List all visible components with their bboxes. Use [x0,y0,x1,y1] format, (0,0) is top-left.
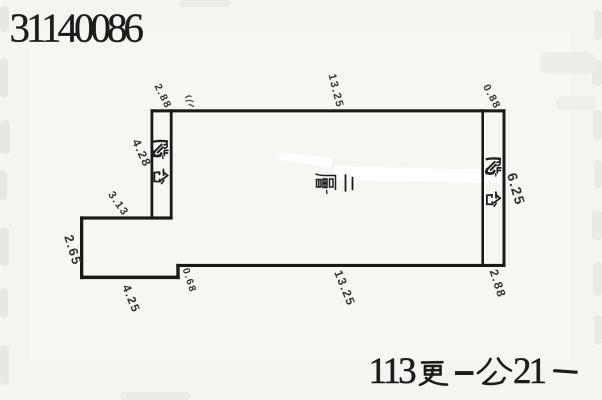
svg-text:113: 113 [369,351,417,392]
svg-text:21: 21 [513,351,546,392]
svg-text:31140086: 31140086 [10,4,144,50]
